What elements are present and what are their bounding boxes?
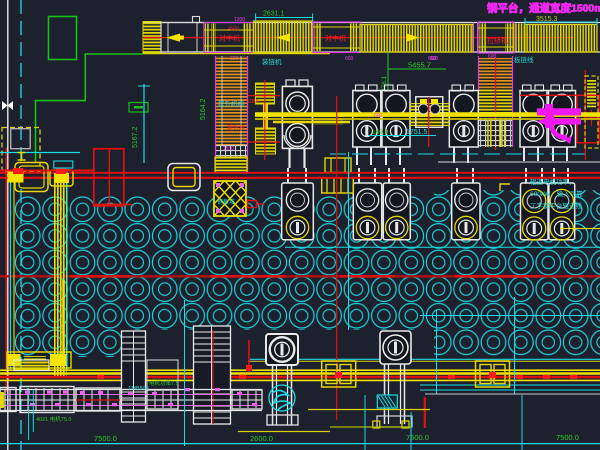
svg-text:600: 600 <box>374 113 383 119</box>
svg-text:1751.5: 1751.5 <box>406 129 428 136</box>
svg-text:5164.2: 5164.2 <box>200 98 207 120</box>
svg-text:提升机: 提升机 <box>227 124 245 132</box>
svg-text:600: 600 <box>488 54 497 60</box>
svg-text:辊道电机功率，: 辊道电机功率， <box>530 177 576 186</box>
svg-text:TMB505: TMB505 <box>128 386 149 392</box>
svg-text:600: 600 <box>428 56 437 62</box>
svg-text:S1BA: S1BA <box>246 99 259 105</box>
svg-text:对中机: 对中机 <box>325 34 346 43</box>
svg-text:7500.0: 7500.0 <box>406 433 429 442</box>
svg-text:7500.0: 7500.0 <box>556 433 579 442</box>
svg-text:600kW，输入可靠: 600kW，输入可靠 <box>530 189 583 198</box>
svg-text:4500: 4500 <box>228 27 239 33</box>
svg-text:提升机构: 提升机构 <box>218 99 245 108</box>
svg-text:600: 600 <box>345 56 354 62</box>
svg-text:5167.2: 5167.2 <box>132 126 139 148</box>
svg-text:2631.1: 2631.1 <box>263 11 285 18</box>
svg-text:装链机: 装链机 <box>262 57 282 66</box>
svg-text:电机功率7.5: 电机功率7.5 <box>149 379 179 387</box>
svg-text:2600.0: 2600.0 <box>250 434 273 443</box>
svg-text:板链线: 板链线 <box>514 55 534 64</box>
svg-text:钢平台，通道宽度1500m: 钢平台，通道宽度1500m <box>487 2 600 15</box>
svg-text:钢板堆: 钢板堆 <box>217 198 235 206</box>
svg-text:1200: 1200 <box>234 17 245 23</box>
svg-text:拉矫机: 拉矫机 <box>487 36 508 45</box>
svg-text:对中机: 对中机 <box>219 34 240 43</box>
svg-text:工字钢平台辊道线: 工字钢平台辊道线 <box>530 201 583 210</box>
svg-text:7500.0: 7500.0 <box>94 434 117 443</box>
svg-text:1500: 1500 <box>223 146 234 152</box>
svg-text:4021 电机75.0: 4021 电机75.0 <box>36 415 71 423</box>
svg-text:3515.3: 3515.3 <box>536 16 558 23</box>
svg-text:149.9: 149.9 <box>372 129 389 136</box>
